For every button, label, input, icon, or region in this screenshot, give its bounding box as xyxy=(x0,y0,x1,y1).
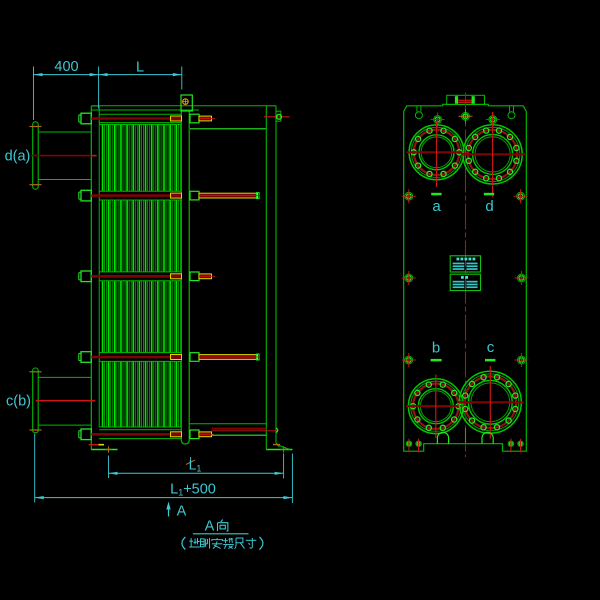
svg-text:A: A xyxy=(177,504,187,520)
svg-text:c: c xyxy=(487,339,495,356)
svg-text:c(b): c(b) xyxy=(6,394,31,410)
svg-text:b: b xyxy=(432,340,440,357)
svg-text:L1+500: L1+500 xyxy=(170,482,216,498)
svg-text:A: A xyxy=(205,519,215,535)
svg-text:d: d xyxy=(485,198,493,215)
svg-text:d(a): d(a) xyxy=(5,149,31,165)
svg-text:a: a xyxy=(432,198,441,215)
svg-text:400: 400 xyxy=(54,59,78,75)
svg-text:L: L xyxy=(136,60,144,76)
